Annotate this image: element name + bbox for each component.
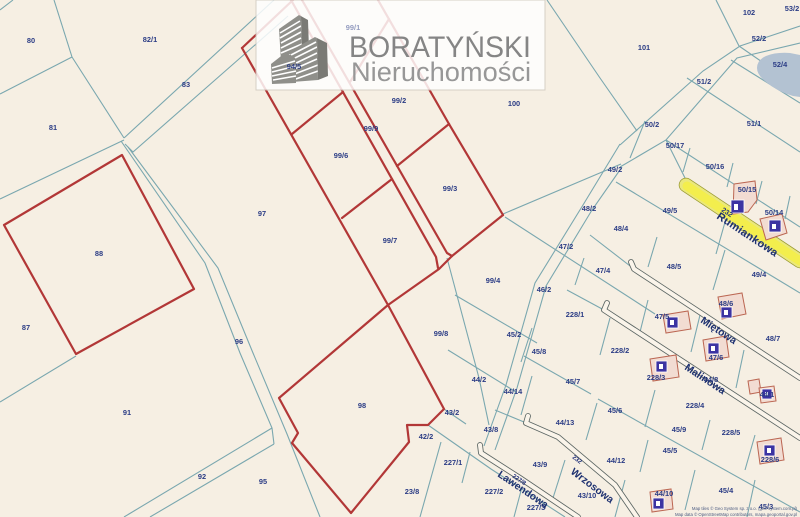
svg-text:45/8: 45/8 — [532, 347, 546, 356]
svg-text:228/4: 228/4 — [686, 401, 705, 410]
svg-text:45/4: 45/4 — [719, 486, 734, 495]
svg-text:52/4: 52/4 — [773, 60, 788, 69]
svg-text:83: 83 — [182, 80, 190, 89]
svg-text:44/14: 44/14 — [504, 387, 523, 396]
svg-text:Map tiles © Geo System sp. z o: Map tiles © Geo System sp. z o.o. (geo-s… — [692, 506, 798, 511]
svg-text:228/2: 228/2 — [611, 346, 630, 355]
svg-text:44/13: 44/13 — [556, 418, 575, 427]
svg-text:45/6: 45/6 — [608, 406, 622, 415]
svg-text:99/4: 99/4 — [486, 276, 501, 285]
svg-text:23/8: 23/8 — [405, 487, 419, 496]
svg-text:81: 81 — [49, 123, 57, 132]
svg-text:48/6: 48/6 — [719, 299, 733, 308]
svg-text:51/1: 51/1 — [747, 119, 761, 128]
svg-text:43/8: 43/8 — [484, 425, 498, 434]
svg-text:227/2: 227/2 — [485, 487, 504, 496]
svg-text:228/6: 228/6 — [761, 455, 780, 464]
svg-text:51/2: 51/2 — [697, 77, 711, 86]
svg-text:47/2: 47/2 — [559, 242, 573, 251]
svg-text:46/2: 46/2 — [537, 285, 551, 294]
svg-text:228/1: 228/1 — [566, 310, 585, 319]
svg-text:48/5: 48/5 — [667, 262, 681, 271]
svg-text:99/8: 99/8 — [434, 329, 448, 338]
svg-text:Map data © OpenStreetMap contr: Map data © OpenStreetMap contributors, m… — [675, 512, 797, 517]
svg-text:43/9: 43/9 — [533, 460, 547, 469]
svg-text:92: 92 — [198, 472, 206, 481]
svg-text:50/15: 50/15 — [738, 185, 757, 194]
svg-text:96: 96 — [235, 337, 243, 346]
svg-text:99/7: 99/7 — [383, 236, 397, 245]
svg-text:47/5: 47/5 — [655, 312, 669, 321]
svg-text:50/2: 50/2 — [645, 120, 659, 129]
svg-text:99/3: 99/3 — [443, 184, 457, 193]
svg-text:95: 95 — [259, 477, 267, 486]
svg-text:228/3: 228/3 — [647, 373, 666, 382]
svg-text:42/2: 42/2 — [419, 432, 433, 441]
svg-text:43/2: 43/2 — [445, 408, 459, 417]
svg-text:48/4: 48/4 — [614, 224, 629, 233]
svg-text:99/2: 99/2 — [392, 96, 406, 105]
svg-text:44/12: 44/12 — [607, 456, 626, 465]
svg-text:80: 80 — [27, 36, 35, 45]
svg-text:45/5: 45/5 — [663, 446, 677, 455]
svg-text:98: 98 — [358, 401, 366, 410]
svg-text:49/4: 49/4 — [752, 270, 767, 279]
svg-text:47/4: 47/4 — [596, 266, 611, 275]
svg-text:97: 97 — [258, 209, 266, 218]
svg-text:102: 102 — [743, 8, 755, 17]
svg-text:91: 91 — [123, 408, 131, 417]
svg-text:44/10: 44/10 — [655, 489, 674, 498]
svg-text:227/1: 227/1 — [444, 458, 463, 467]
svg-text:100: 100 — [508, 99, 520, 108]
svg-text:228/5: 228/5 — [722, 428, 741, 437]
svg-text:99/9: 99/9 — [364, 124, 378, 133]
svg-text:48/2: 48/2 — [582, 204, 596, 213]
svg-text:45/9: 45/9 — [672, 425, 686, 434]
svg-text:49/2: 49/2 — [608, 165, 622, 174]
svg-text:52/2: 52/2 — [752, 34, 766, 43]
svg-text:50/14: 50/14 — [765, 208, 784, 217]
svg-text:44/2: 44/2 — [472, 375, 486, 384]
svg-text:47/6: 47/6 — [709, 353, 723, 362]
svg-text:53/2: 53/2 — [785, 4, 799, 13]
svg-text:101: 101 — [638, 43, 650, 52]
svg-text:88: 88 — [95, 249, 103, 258]
svg-text:Nieruchomości: Nieruchomości — [351, 57, 531, 87]
svg-text:48/7: 48/7 — [766, 334, 780, 343]
svg-text:87: 87 — [22, 323, 30, 332]
svg-text:99/6: 99/6 — [334, 151, 348, 160]
svg-text:82/1: 82/1 — [143, 35, 157, 44]
svg-text:49/5: 49/5 — [663, 206, 677, 215]
svg-text:50/17: 50/17 — [666, 141, 685, 150]
svg-text:45/7: 45/7 — [566, 377, 580, 386]
svg-text:94/5: 94/5 — [287, 62, 301, 71]
svg-text:44/1: 44/1 — [760, 390, 774, 399]
svg-text:50/16: 50/16 — [706, 162, 725, 171]
svg-text:45/2: 45/2 — [507, 330, 521, 339]
